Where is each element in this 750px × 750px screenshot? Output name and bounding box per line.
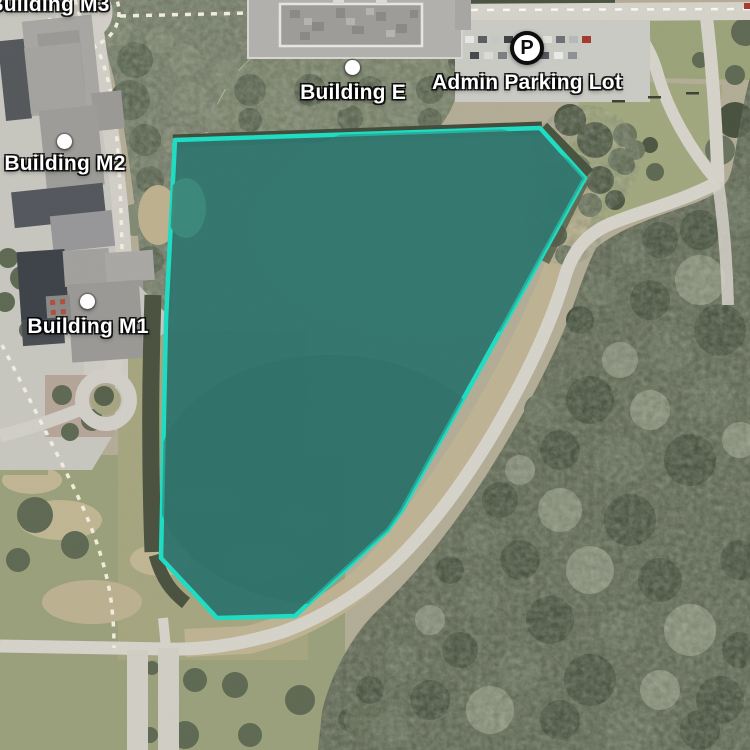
parking-icon[interactable]: P — [510, 31, 544, 65]
image-grain — [0, 0, 750, 750]
parking-icon-letter: P — [520, 37, 533, 60]
aerial-imagery — [0, 0, 750, 750]
marker-building-m2[interactable] — [57, 134, 72, 149]
marker-building-m1[interactable] — [80, 294, 95, 309]
map-canvas[interactable]: Building M3 Building M2 Building M1 Buil… — [0, 0, 750, 750]
marker-building-e[interactable] — [345, 60, 360, 75]
